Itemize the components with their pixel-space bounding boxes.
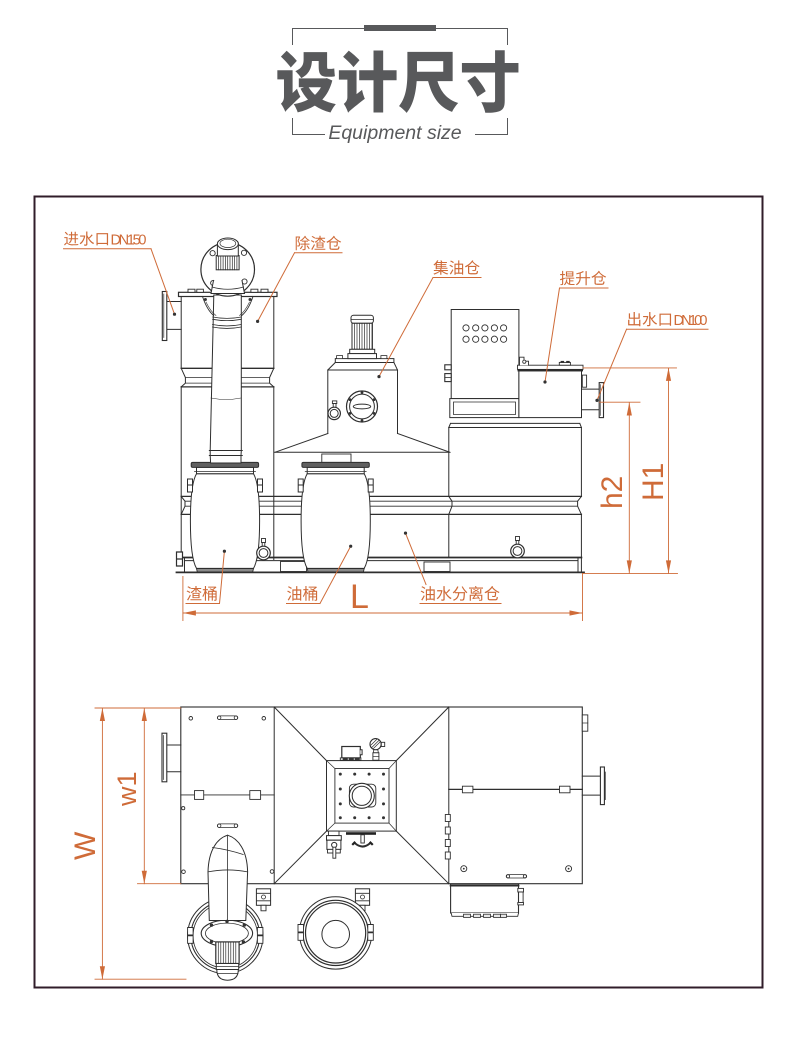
- svg-text:W: W: [69, 831, 102, 860]
- svg-text:DN150: DN150: [111, 233, 147, 249]
- svg-text:h2: h2: [596, 476, 629, 509]
- svg-text:L: L: [350, 578, 369, 616]
- svg-text:w1: w1: [112, 771, 142, 807]
- svg-text:DN100: DN100: [674, 313, 708, 329]
- svg-text:H1: H1: [637, 463, 670, 501]
